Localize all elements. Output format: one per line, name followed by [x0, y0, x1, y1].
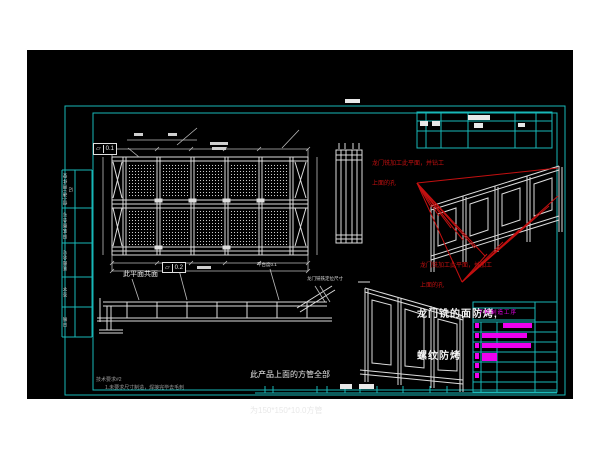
bom-cell-text: [482, 353, 497, 361]
dimension-text-blob: [134, 133, 143, 136]
red-note-line: 龙门铣加工此平面，并钻工: [372, 161, 444, 168]
bom-cell-mark: [475, 363, 479, 368]
cad-drawing-canvas: ⏥ 0.1 ⏥ 0.2 此平面共面 平台度0.1 龙门铣铣定位尺寸 龙门铣加工此…: [27, 50, 573, 399]
left-strip-row: 借(通)用件登记: [62, 171, 92, 207]
dimension-text-blob: [212, 147, 226, 150]
platform-flatness-note: 平台度0.1: [257, 263, 277, 268]
left-strip-row: 签字: [62, 278, 92, 306]
square-tube-note-line: 此产品上面的方管全部: [250, 369, 330, 381]
bom-cell-text: [503, 323, 532, 328]
page-background: { "annotations": { "fcf1": { "symbol": "…: [0, 0, 600, 450]
bom-cell-mark: [475, 373, 479, 378]
bom-cell-mark: [475, 353, 479, 359]
plan-hatch-panel: [196, 164, 223, 198]
left-strip-row: 旧底图总号: [62, 209, 92, 242]
dimension-text-blob: [210, 142, 228, 145]
bom-cell-mark: [475, 333, 479, 338]
left-strip-row: 底图总号: [62, 244, 92, 276]
bom-cell-text: [482, 333, 527, 338]
red-machining-note-top: 龙门铣加工此平面，并钻工 上面的孔: [372, 148, 444, 201]
tech-requirements-item: 1.未要求尺寸制造，焊接完毕去毛刺: [105, 386, 184, 392]
plan-hatch-panel: [128, 210, 155, 246]
section-view: [336, 143, 362, 243]
plan-hatch-panel: [196, 210, 223, 246]
plan-hatch-panel: [230, 164, 257, 198]
flatness-value: 0.1: [104, 145, 116, 153]
flatness-symbol: ⏥: [163, 264, 173, 272]
plan-hatch-panel: [264, 210, 288, 246]
bom-cell-mark: [475, 323, 479, 328]
dimension-text-blob: [168, 133, 177, 136]
square-tube-note-line: 为150*150*10.0方管: [250, 405, 330, 417]
note-leader-lines: [132, 269, 330, 302]
left-strip-row: 日期: [62, 308, 92, 336]
plan-hatch-panel: [230, 210, 257, 246]
flatness-value: 0.2: [173, 264, 185, 272]
elevation-view: [97, 286, 335, 333]
bom-cell-text: [482, 343, 531, 348]
square-tube-note: 此产品上面的方管全部 为150*150*10.0方管: [250, 345, 330, 441]
flatness-symbol: ⏥: [94, 145, 104, 153]
flatness-feature-control-frame-1: ⏥ 0.1: [93, 143, 117, 155]
bom-cell-mark: [475, 343, 479, 348]
plan-hatch-panel: [264, 164, 288, 198]
red-note-line: 龙门铣加工此平面，并加工: [420, 263, 492, 270]
bom-table-header: 下料制造工序: [478, 310, 517, 316]
red-note-line: 上面的孔: [372, 181, 444, 188]
gantry-mill-dim-note: 龙门铣铣定位尺寸: [307, 277, 343, 282]
tech-requirements-title: 技术要求#2: [96, 378, 122, 384]
dimension-text-blob: [197, 266, 211, 269]
plan-hatch-panel: [162, 164, 189, 198]
coplanar-note: 此平面共面: [123, 271, 158, 279]
plan-hatch-panel: [128, 164, 155, 198]
flatness-feature-control-frame-2: ⏥ 0.2: [162, 262, 186, 273]
plan-hatch-panel: [162, 210, 189, 246]
